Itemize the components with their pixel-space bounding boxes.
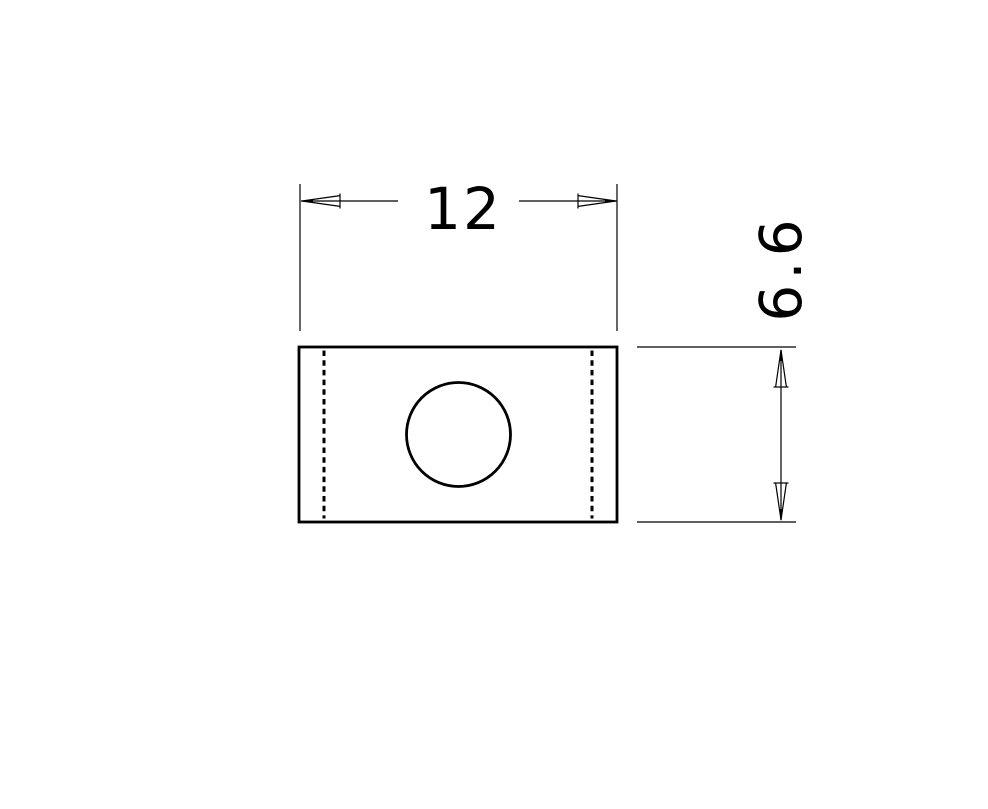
width-dimension: 12 (300, 175, 617, 331)
drawing-canvas: 12 6.6 (0, 0, 988, 809)
hole-circle (407, 383, 511, 487)
width-dimension-value: 12 (424, 175, 502, 243)
technical-drawing: 12 6.6 (299, 175, 815, 522)
part-view (299, 347, 617, 522)
height-dimension: 6.6 (637, 214, 815, 522)
height-dimension-value: 6.6 (747, 214, 815, 321)
